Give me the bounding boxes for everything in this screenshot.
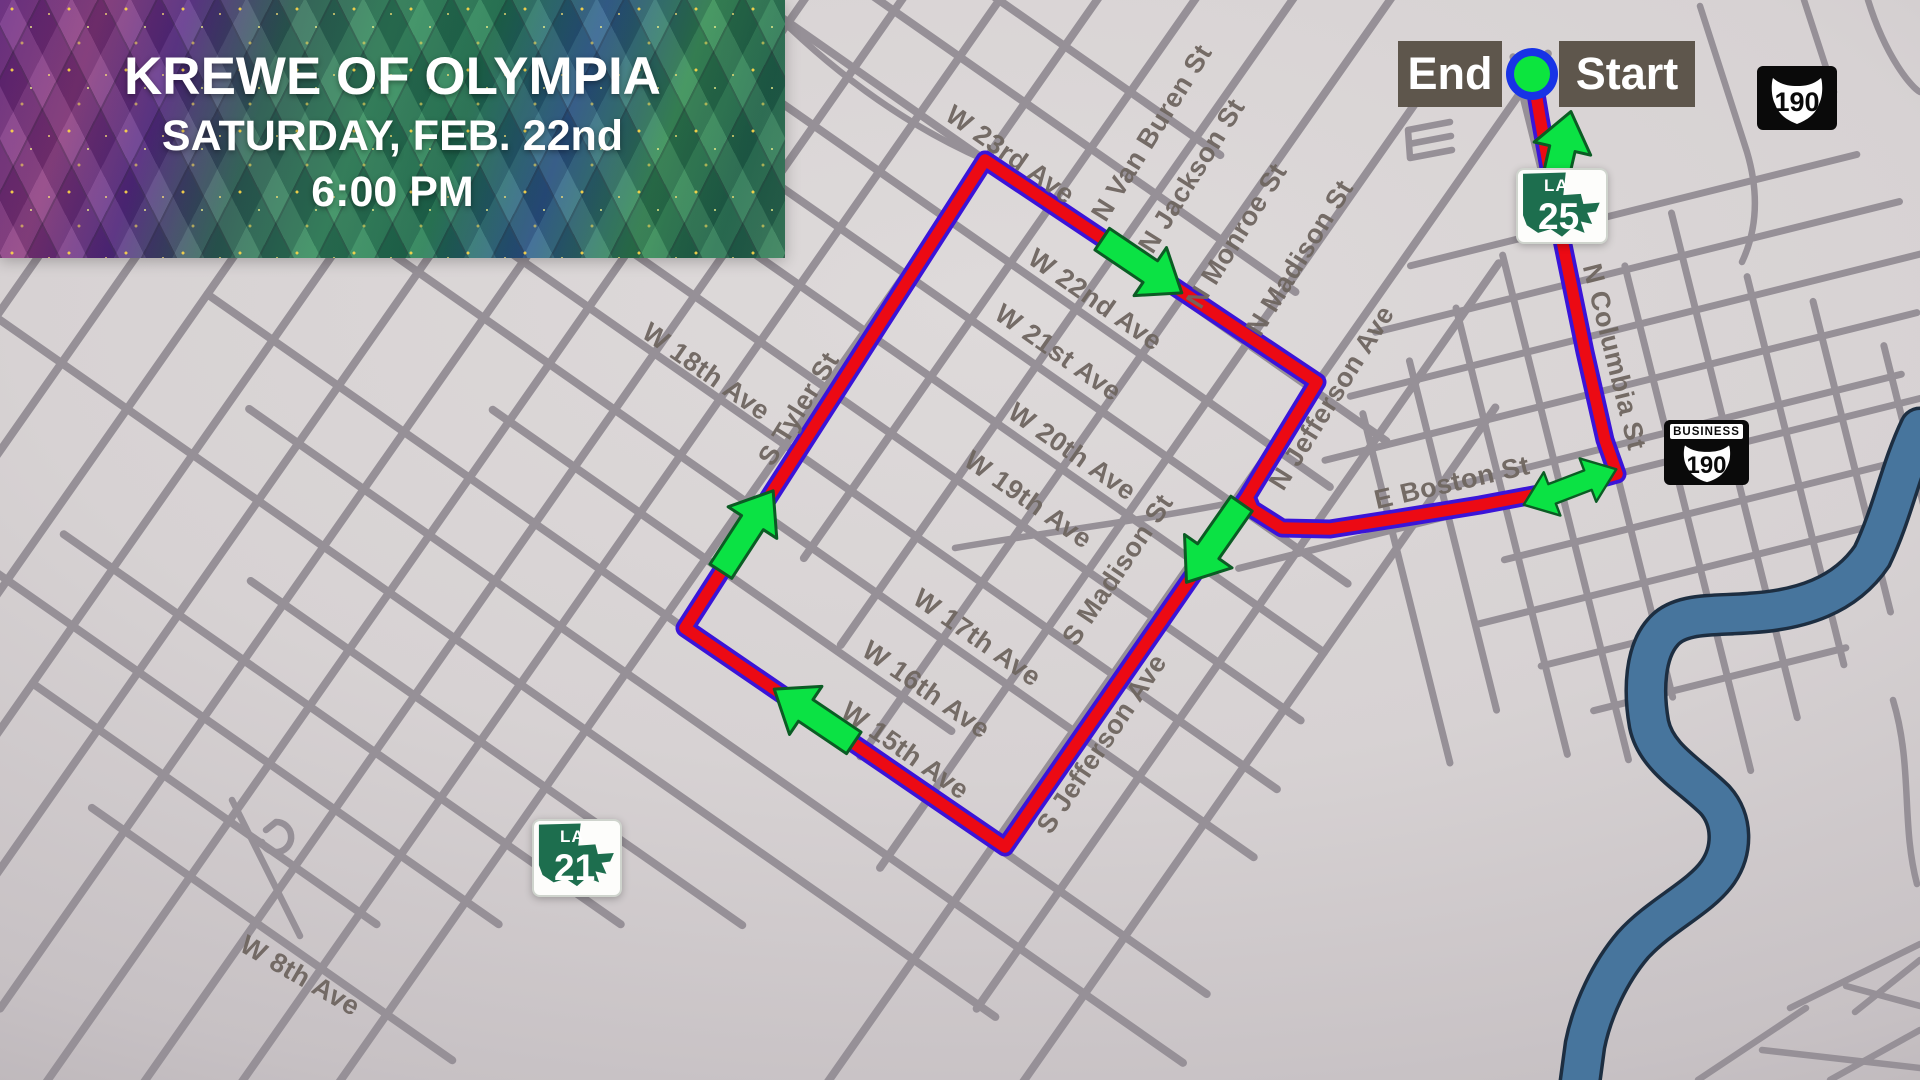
us-190-business-shield: BUSINESS 190 xyxy=(1664,420,1749,485)
parade-time: 6:00 PM xyxy=(0,164,785,220)
title-banner: KREWE OF OLYMPIA SATURDAY, FEB. 22nd 6:0… xyxy=(0,0,785,258)
end-tag: End xyxy=(1398,41,1502,107)
business-banner: BUSINESS xyxy=(1670,424,1743,439)
start-label: Start xyxy=(1576,48,1679,100)
parade-date: SATURDAY, FEB. 22nd xyxy=(0,108,785,164)
us-190-business-number: 190 xyxy=(1686,452,1726,480)
street-grid-downtown xyxy=(1135,0,1920,879)
la-21-number: 21 xyxy=(554,847,595,889)
la-21-shield: LA 21 xyxy=(532,819,622,897)
la-25-state: LA xyxy=(1544,176,1569,196)
us-190-shield: 190 xyxy=(1757,66,1837,130)
start-tag: Start xyxy=(1559,41,1695,107)
la-25-shield: LA 25 xyxy=(1516,168,1608,244)
us-190-number: 190 xyxy=(1774,87,1819,118)
parade-route-map: W 23rd AveN Van Buren StN Jackson StN Mo… xyxy=(0,0,1920,1080)
la-25-number: 25 xyxy=(1538,196,1579,238)
la-21-state: LA xyxy=(560,827,585,847)
start-end-marker-icon xyxy=(1505,47,1559,101)
parade-title: KREWE OF OLYMPIA xyxy=(0,46,785,108)
end-label: End xyxy=(1408,48,1493,100)
